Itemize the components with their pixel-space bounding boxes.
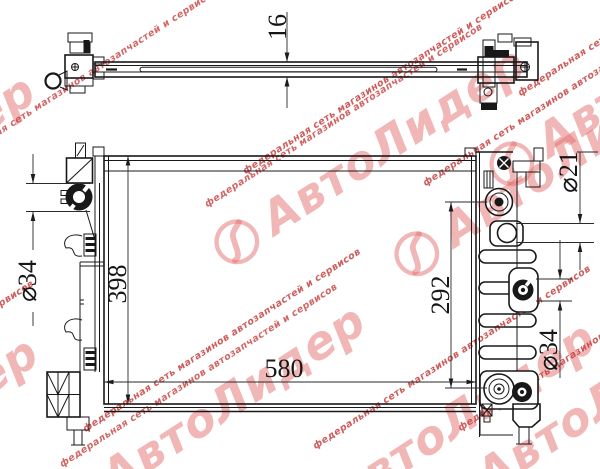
dimension-16-label: 16	[263, 14, 292, 40]
dimension-core-thickness: 16	[263, 12, 292, 108]
left-bottom-mount	[47, 372, 89, 445]
radiator-technical-drawing: федеральная сеть магазинов автозапчастей…	[0, 0, 600, 469]
dimension-right-d34-label: ⌀34	[534, 329, 563, 371]
middle-right-port	[509, 268, 538, 312]
left-tank	[47, 143, 104, 445]
top-view: 16	[46, 12, 539, 110]
vent-cap	[497, 156, 511, 170]
right-bottom-mount	[480, 404, 540, 444]
dimension-398-label: 398	[103, 265, 132, 304]
left-inlet-port	[61, 184, 93, 212]
dimension-top-right-port: ⌀21	[516, 151, 598, 270]
dimension-580-label: 580	[265, 354, 304, 383]
dimension-left-inlet: ⌀34	[13, 154, 90, 326]
dimension-left-d34-label: ⌀34	[13, 260, 42, 302]
dimension-d21-label: ⌀21	[554, 151, 583, 193]
left-clip-upper	[65, 235, 82, 256]
dimension-bottom-right-port: ⌀34	[534, 240, 572, 378]
left-clip-lower	[65, 319, 82, 340]
dimension-right-ports-span: 292	[426, 202, 487, 388]
front-view: 398 292 580	[13, 143, 598, 445]
dimension-292-label: 292	[426, 276, 455, 315]
radiator-drawing-svg: 16	[0, 0, 600, 469]
dimension-core-width: 580	[104, 354, 476, 384]
dimension-core-height: 398	[103, 156, 132, 404]
filler-neck	[486, 189, 513, 216]
